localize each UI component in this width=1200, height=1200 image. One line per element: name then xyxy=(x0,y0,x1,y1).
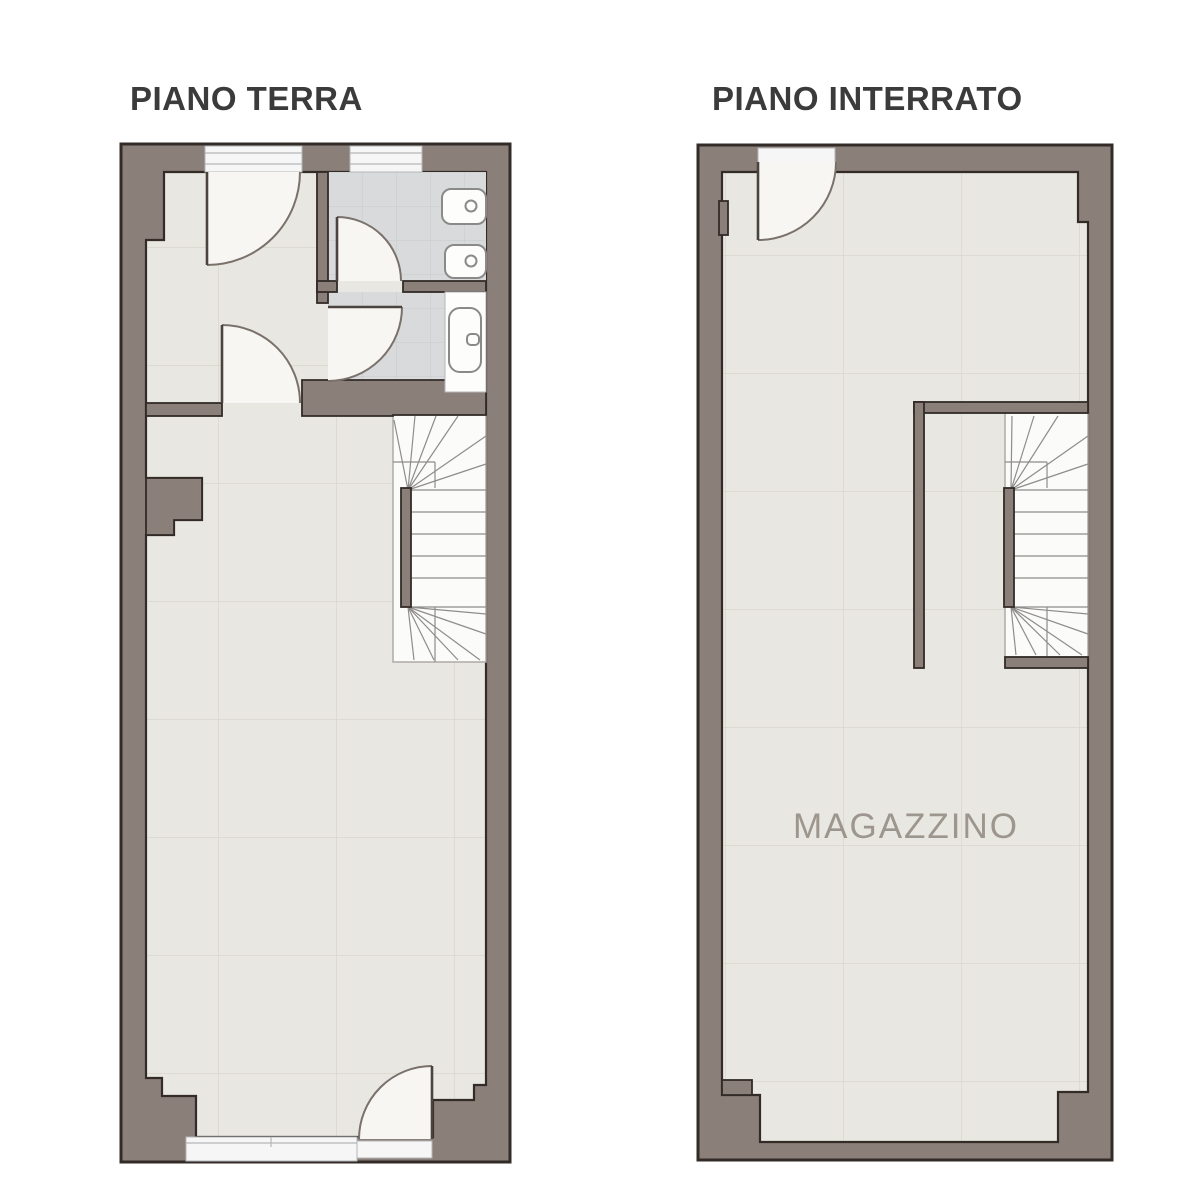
stair-side-wall xyxy=(914,402,924,668)
stair-top-wall xyxy=(914,402,1088,413)
wall-notch xyxy=(722,1080,752,1095)
bathroom-divider-wall-left xyxy=(317,281,337,292)
toilet-icon xyxy=(442,189,486,224)
bidet-icon xyxy=(445,245,486,278)
rear-door-threshold xyxy=(357,1141,432,1158)
room-label-magazzino: MAGAZZINO xyxy=(793,807,1019,846)
wall-tick xyxy=(719,201,728,235)
staircase xyxy=(393,415,486,662)
stair-spine-wall xyxy=(1004,488,1014,607)
plan-piano-interrato: MAGAZZINO xyxy=(698,145,1112,1160)
stair-bottom-wall xyxy=(1005,657,1088,668)
floor-plan-canvas: PIANO TERRA PIANO INTERRATO xyxy=(0,0,1200,1200)
stair-spine-wall xyxy=(401,488,411,607)
wc-window xyxy=(350,146,422,172)
front-entry-opening xyxy=(205,146,302,172)
vestibule-bottom-wall xyxy=(146,403,222,416)
bathtub-icon xyxy=(445,292,486,392)
bathroom-divider-wall-right xyxy=(403,281,486,292)
floor-plan-drawing: MAGAZZINO xyxy=(0,0,1200,1200)
plan-piano-terra xyxy=(121,144,510,1162)
rear-shop-window xyxy=(186,1137,357,1161)
